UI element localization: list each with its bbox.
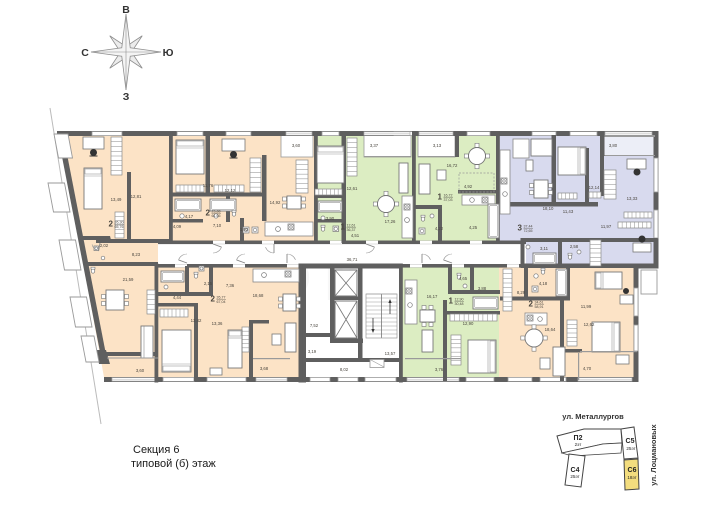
svg-text:4,25: 4,25: [469, 225, 478, 230]
svg-text:13,57: 13,57: [385, 351, 396, 356]
svg-text:Секция 6: Секция 6: [133, 444, 179, 456]
svg-text:7,52: 7,52: [310, 323, 319, 328]
svg-text:С4: С4: [571, 467, 580, 474]
svg-text:В: В: [122, 4, 130, 16]
svg-text:4,17: 4,17: [185, 214, 194, 219]
svg-text:12,14: 12,14: [589, 185, 600, 190]
svg-text:36,71: 36,71: [347, 257, 358, 262]
svg-text:23,88: 23,88: [212, 210, 221, 214]
svg-text:18,68: 18,68: [253, 293, 264, 298]
svg-text:С: С: [81, 47, 89, 59]
svg-text:7,36: 7,36: [226, 283, 235, 288]
svg-text:11,76: 11,76: [203, 183, 214, 188]
svg-text:13,36: 13,36: [212, 321, 223, 326]
svg-text:1,92: 1,92: [240, 227, 249, 232]
svg-text:4,09: 4,09: [173, 224, 182, 229]
svg-text:4,22: 4,22: [435, 226, 444, 231]
svg-text:3,11: 3,11: [540, 246, 549, 251]
svg-text:2: 2: [529, 300, 534, 309]
svg-text:2: 2: [206, 209, 211, 218]
svg-text:2: 2: [109, 220, 114, 229]
svg-text:25эт: 25эт: [570, 474, 579, 479]
svg-text:2,15: 2,15: [204, 281, 213, 286]
svg-text:4,18: 4,18: [539, 281, 548, 286]
svg-text:37,03: 37,03: [444, 198, 453, 202]
svg-text:21,59: 21,59: [123, 277, 134, 282]
svg-text:12,90: 12,90: [455, 298, 464, 302]
svg-text:16,72: 16,72: [444, 194, 453, 198]
svg-text:2,58: 2,58: [570, 244, 579, 249]
svg-text:П2: П2: [574, 435, 583, 442]
svg-text:3,60: 3,60: [292, 143, 301, 148]
svg-text:18эт: 18эт: [627, 475, 636, 480]
svg-text:72,65: 72,65: [524, 229, 533, 233]
svg-text:ул. Металлургов: ул. Металлургов: [562, 412, 624, 421]
svg-text:8,02: 8,02: [340, 367, 349, 372]
svg-text:12,12: 12,12: [225, 188, 236, 193]
svg-text:17,26: 17,26: [385, 219, 396, 224]
svg-text:4,51: 4,51: [351, 233, 360, 238]
svg-text:3: 3: [518, 224, 523, 233]
svg-text:12,61: 12,61: [347, 186, 358, 191]
svg-text:18,10: 18,10: [543, 206, 554, 211]
svg-text:3,90: 3,90: [326, 216, 335, 221]
svg-text:65,76: 65,76: [115, 225, 124, 229]
svg-text:3,60: 3,60: [136, 368, 145, 373]
svg-text:типовой (б) этаж: типовой (б) этаж: [131, 458, 216, 470]
svg-text:18,64: 18,64: [545, 327, 556, 332]
svg-text:1: 1: [438, 193, 443, 202]
svg-text:3,88: 3,88: [478, 286, 487, 291]
svg-text:4,70: 4,70: [583, 366, 592, 371]
svg-text:7,10: 7,10: [213, 223, 222, 228]
svg-text:26,77: 26,77: [217, 296, 226, 300]
svg-text:58,91: 58,91: [535, 305, 544, 309]
svg-text:12,62: 12,62: [584, 322, 595, 327]
svg-text:16,17: 16,17: [427, 294, 438, 299]
svg-text:С5: С5: [626, 438, 635, 445]
svg-text:36,37: 36,37: [347, 228, 356, 232]
svg-text:12,90: 12,90: [463, 321, 474, 326]
svg-text:4,65: 4,65: [459, 276, 468, 281]
svg-text:14,92: 14,92: [270, 200, 281, 205]
svg-text:4,92: 4,92: [464, 184, 473, 189]
svg-text:Ю: Ю: [163, 47, 174, 59]
svg-text:25эт: 25эт: [626, 446, 635, 451]
svg-text:13,42: 13,42: [191, 318, 202, 323]
svg-text:12,81: 12,81: [131, 194, 142, 199]
svg-text:2эт: 2эт: [575, 442, 582, 447]
svg-text:3,80: 3,80: [609, 143, 618, 148]
svg-text:37,44: 37,44: [524, 225, 533, 229]
svg-text:3,37: 3,37: [370, 143, 379, 148]
svg-text:1: 1: [341, 223, 346, 232]
svg-text:3,13: 3,13: [433, 143, 442, 148]
svg-text:3,68: 3,68: [260, 366, 269, 371]
svg-text:1: 1: [449, 297, 454, 306]
svg-text:3,19: 3,19: [308, 349, 317, 354]
svg-text:11,99: 11,99: [581, 304, 592, 309]
svg-text:34,61: 34,61: [535, 301, 544, 305]
svg-text:2: 2: [211, 295, 216, 304]
svg-text:13,49: 13,49: [111, 197, 122, 202]
svg-text:8,29: 8,29: [517, 290, 526, 295]
svg-text:3,76: 3,76: [435, 367, 444, 372]
svg-text:12,61: 12,61: [347, 224, 356, 228]
svg-text:С6: С6: [628, 467, 637, 474]
svg-text:16,72: 16,72: [447, 163, 458, 168]
svg-text:11,43: 11,43: [563, 209, 574, 214]
svg-text:67,04: 67,04: [217, 300, 226, 304]
svg-text:26,30: 26,30: [115, 221, 124, 225]
svg-text:11,97: 11,97: [601, 224, 612, 229]
svg-text:61,65: 61,65: [212, 214, 221, 218]
svg-text:30,48: 30,48: [455, 302, 464, 306]
svg-text:2,02: 2,02: [100, 243, 109, 248]
svg-text:4,44: 4,44: [173, 295, 182, 300]
svg-text:ул. Лоцмановых: ул. Лоцмановых: [649, 423, 658, 485]
svg-text:13,33: 13,33: [627, 196, 638, 201]
svg-text:8,23: 8,23: [132, 252, 141, 257]
svg-text:З: З: [123, 91, 130, 103]
